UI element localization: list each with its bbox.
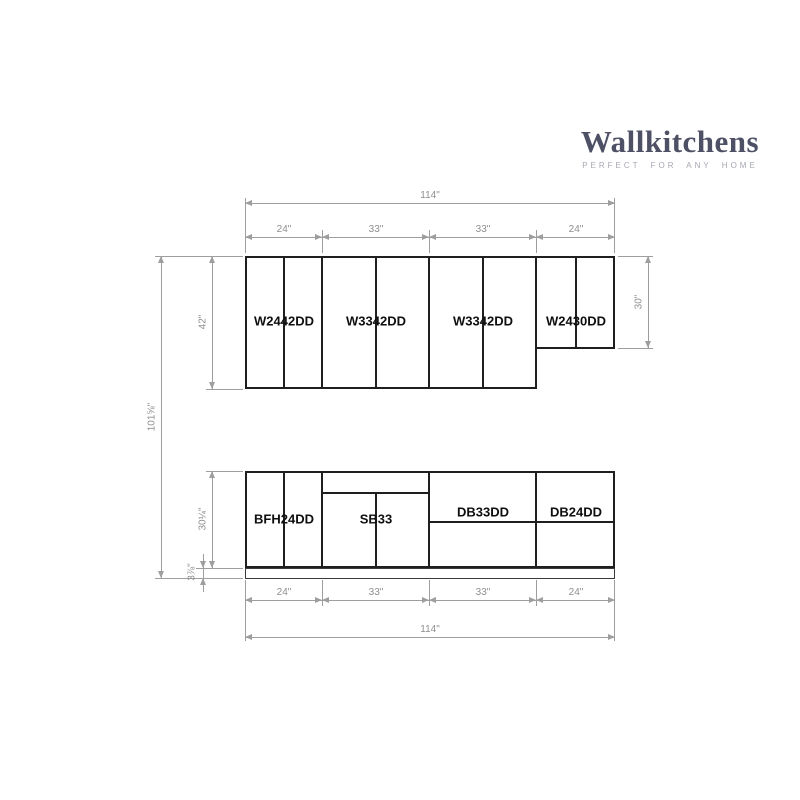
logo-tagline: PERFECT FOR ANY HOME — [560, 161, 780, 170]
dim-arrow — [536, 597, 543, 603]
dim-label-overall-height: 101⅝" — [147, 403, 158, 432]
dim-line-bottom-overall — [245, 637, 615, 638]
logo-brand: Wallkitchens — [560, 124, 780, 160]
dim-arrow — [422, 234, 429, 240]
extension-line — [206, 389, 243, 390]
dim-arrow — [209, 256, 215, 263]
dim-label-toe-kick: 3⅞" — [187, 563, 198, 580]
cabinet-label-bfh24dd: BFH24DD — [254, 512, 314, 527]
dim-label-bottom-seg-4: 24" — [569, 587, 584, 598]
extension-line — [245, 198, 246, 253]
cabinet-label-w2442dd: W2442DD — [254, 314, 314, 329]
dim-arrow — [529, 234, 536, 240]
dim-line-base-height — [212, 471, 213, 568]
dim-label-bottom-seg-2: 33" — [369, 587, 384, 598]
dim-label-base-height: 30¼" — [198, 507, 209, 530]
cabinet-label-sb33: SB33 — [360, 512, 393, 527]
dim-line-wall-height — [212, 256, 213, 389]
dim-arrow — [422, 597, 429, 603]
dim-label-top-seg-4: 24" — [569, 224, 584, 235]
toe-kick — [245, 568, 615, 579]
extension-line — [614, 198, 615, 253]
dim-label-top-overall: 114" — [420, 190, 440, 201]
dim-label-top-seg-1: 24" — [277, 224, 292, 235]
dim-line-corner-wall-height — [648, 256, 649, 348]
cabinet-label-db24dd: DB24DD — [550, 505, 602, 520]
dim-arrow — [200, 578, 206, 585]
cabinet-box-db33dd — [428, 471, 537, 568]
dim-arrow — [645, 341, 651, 348]
dim-arrow — [608, 200, 615, 206]
extension-line — [614, 580, 615, 641]
cabinet-label-w3342dd-1: W3342DD — [346, 314, 406, 329]
dim-arrow — [200, 561, 206, 568]
dim-label-bottom-seg-1: 24" — [277, 587, 292, 598]
cabinet-label-w2430dd: W2430DD — [546, 314, 606, 329]
dim-arrow — [209, 471, 215, 478]
dim-line-overall-height — [161, 256, 162, 578]
dim-arrow — [245, 634, 252, 640]
dim-line-toe-kick — [203, 554, 204, 592]
dim-arrow — [315, 234, 322, 240]
extension-line — [155, 256, 243, 257]
extension-line — [245, 580, 246, 641]
cabinet-label-db33dd: DB33DD — [457, 505, 509, 520]
dim-arrow — [429, 597, 436, 603]
dim-arrow — [322, 234, 329, 240]
dim-arrow — [529, 597, 536, 603]
dim-line-top-overall — [245, 203, 615, 204]
dim-arrow — [608, 597, 615, 603]
door-divider — [575, 257, 577, 348]
dim-arrow — [322, 597, 329, 603]
dim-arrow — [536, 234, 543, 240]
dim-arrow — [608, 634, 615, 640]
dim-label-corner-wall-height: 30" — [634, 295, 645, 310]
dim-label-top-seg-3: 33" — [476, 224, 491, 235]
dim-arrow — [209, 561, 215, 568]
extension-line — [155, 578, 243, 579]
dim-arrow — [645, 256, 651, 263]
dim-label-bottom-seg-3: 33" — [476, 587, 491, 598]
cabinet-label-w3342dd-2: W3342DD — [453, 314, 513, 329]
dim-arrow — [209, 382, 215, 389]
dim-label-wall-height: 42" — [198, 315, 209, 330]
dim-arrow — [245, 234, 252, 240]
dim-arrow — [158, 571, 164, 578]
extension-line — [618, 348, 653, 349]
dim-label-bottom-overall: 114" — [420, 624, 440, 635]
dim-arrow — [245, 200, 252, 206]
dim-arrow — [608, 234, 615, 240]
dim-label-top-seg-2: 33" — [369, 224, 384, 235]
drawer-divider — [429, 521, 536, 523]
drawer-divider — [536, 521, 614, 523]
door-divider — [375, 493, 377, 567]
dim-arrow — [429, 234, 436, 240]
cabinet-elevation-drawing: Wallkitchens PERFECT FOR ANY HOME 114" 2… — [0, 0, 800, 800]
dim-arrow — [315, 597, 322, 603]
dim-arrow — [245, 597, 252, 603]
dim-arrow — [158, 256, 164, 263]
cabinet-box-db24dd — [535, 471, 615, 568]
